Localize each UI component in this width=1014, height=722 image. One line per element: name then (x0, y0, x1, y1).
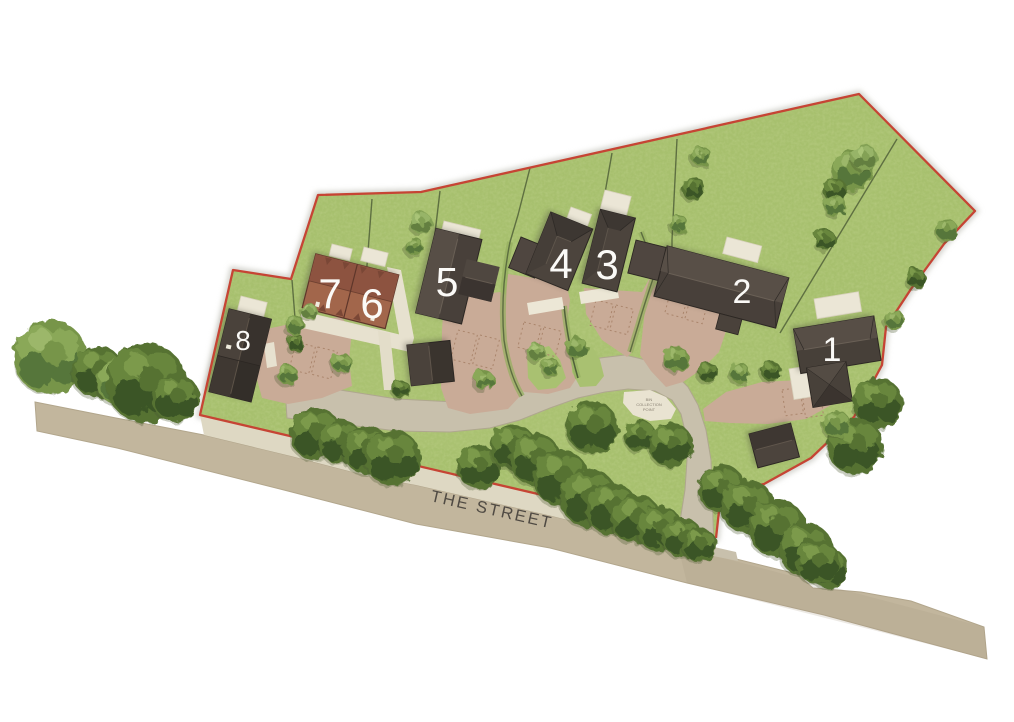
svg-text:5: 5 (436, 259, 459, 305)
svg-text:3: 3 (595, 241, 618, 288)
svg-text:POINT: POINT (643, 407, 656, 412)
svg-text:8: 8 (235, 325, 251, 356)
svg-text:2: 2 (733, 273, 752, 311)
svg-text:4: 4 (549, 240, 572, 287)
svg-text:1: 1 (823, 331, 842, 369)
svg-text:6: 6 (360, 280, 383, 327)
svg-text:7: 7 (318, 270, 341, 317)
